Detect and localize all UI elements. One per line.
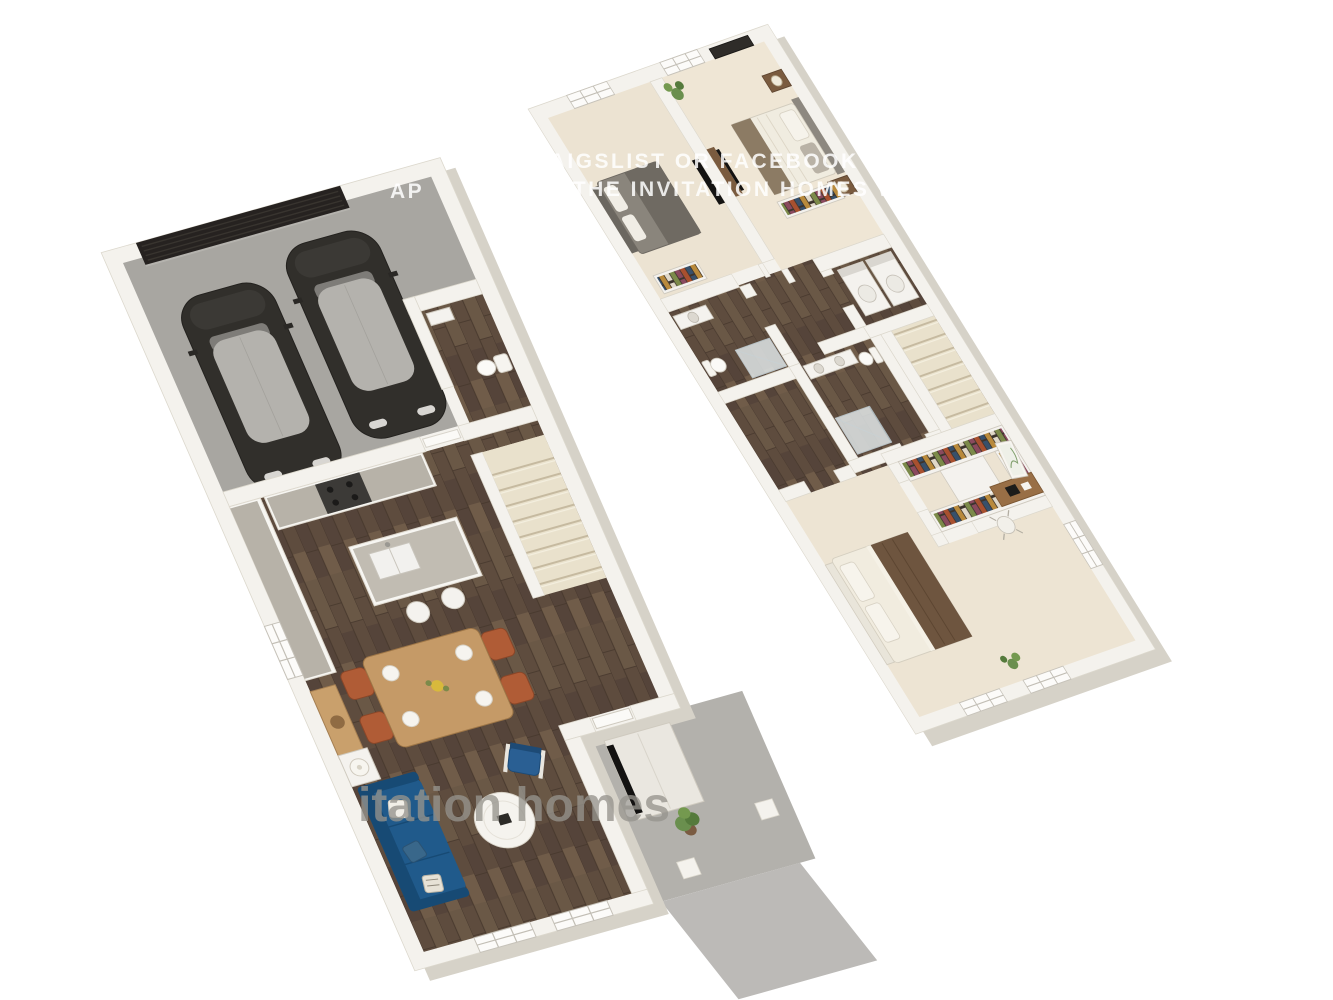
watermark-top-line1: RAIGSLIST OR FACEBOOK MARKET: [532, 150, 972, 174]
floor-plan-screenshot: RAIGSLIST OR FACEBOOK MARKET AP ON THE I…: [0, 0, 1333, 1000]
throw-pillow: [422, 874, 444, 893]
watermark-invitation-homes-logo: itation homes: [358, 778, 670, 833]
watermark-top-line2-left-fragment: AP: [390, 180, 424, 204]
watermark-top-line2-right-fragment: ON THE INVITATION HOMES WEBSITE: [528, 178, 991, 202]
